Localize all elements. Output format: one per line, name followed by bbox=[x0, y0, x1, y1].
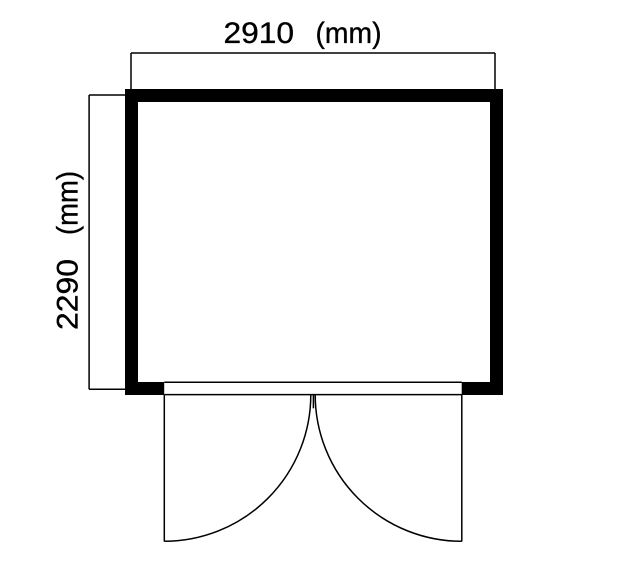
svg-text:2910: 2910 bbox=[224, 17, 295, 50]
svg-text:2290: 2290 bbox=[52, 259, 85, 330]
svg-text:(mm): (mm) bbox=[316, 17, 382, 50]
svg-text:(mm): (mm) bbox=[52, 171, 85, 235]
